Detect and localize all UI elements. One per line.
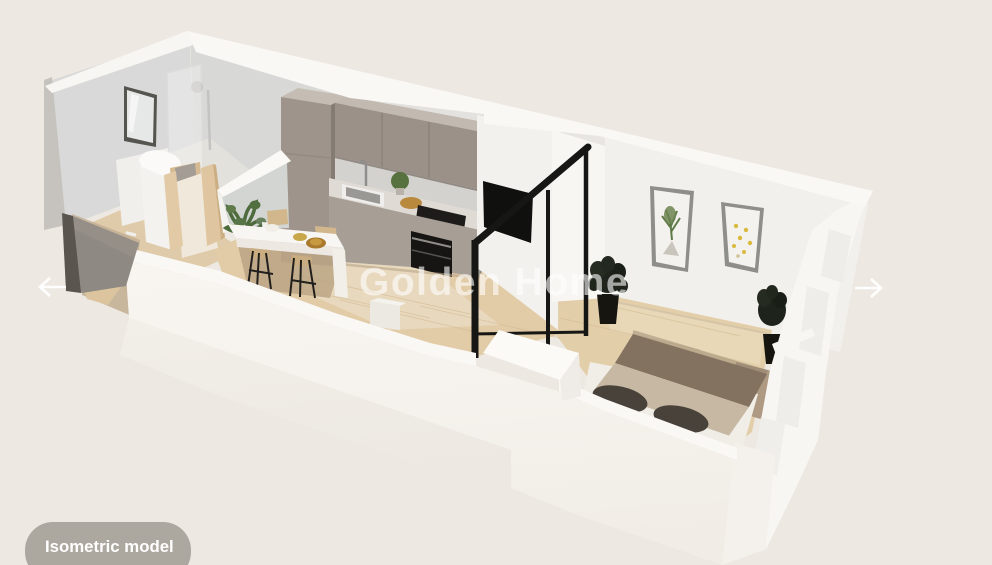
svg-text:Golden Home: Golden Home bbox=[359, 261, 629, 304]
svg-text:Isometric model: Isometric model bbox=[45, 537, 174, 556]
